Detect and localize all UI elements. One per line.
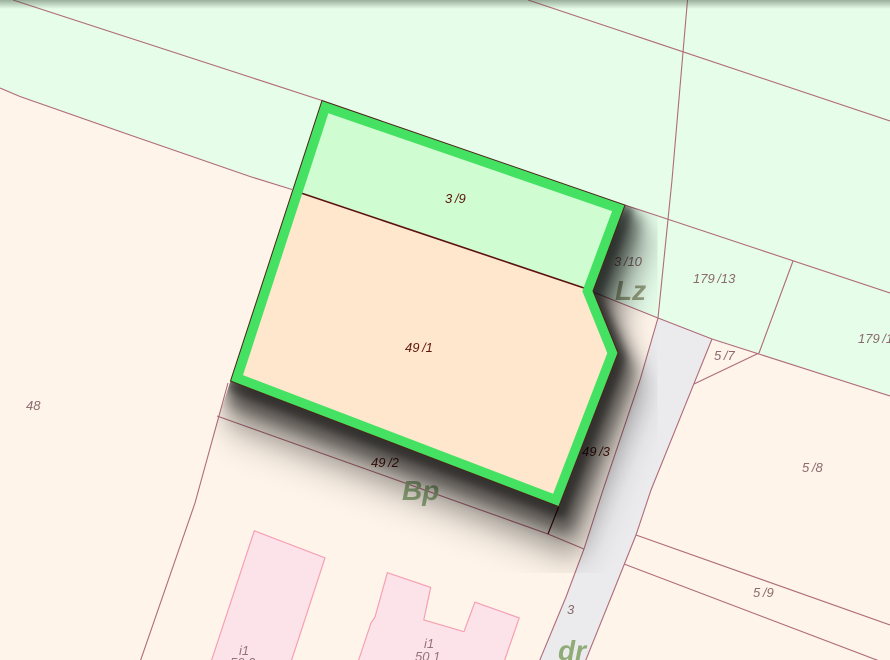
- svg-text:179 /13: 179 /13: [693, 271, 736, 286]
- svg-text:50 2: 50 2: [230, 655, 256, 660]
- svg-text:3 /9: 3 /9: [445, 191, 466, 206]
- svg-text:50 1: 50 1: [415, 649, 440, 660]
- svg-text:3: 3: [567, 602, 575, 617]
- svg-text:49 /1: 49 /1: [405, 340, 433, 355]
- svg-text:5 /7: 5 /7: [714, 348, 735, 363]
- svg-text:5 /8: 5 /8: [802, 460, 823, 475]
- svg-text:5 /9: 5 /9: [753, 585, 774, 600]
- svg-text:dr: dr: [558, 635, 588, 660]
- svg-text:179 /11: 179 /11: [858, 331, 890, 346]
- svg-text:48: 48: [26, 398, 41, 413]
